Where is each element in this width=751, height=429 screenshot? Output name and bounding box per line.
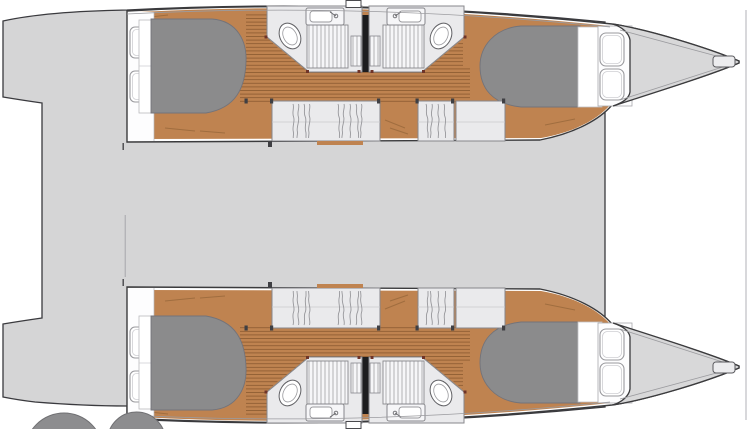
catamaran-layout-plan	[0, 0, 751, 429]
engine-prop-circle	[25, 413, 103, 429]
starboard-hull	[127, 1, 739, 148]
plan-svg	[0, 0, 751, 429]
port-hull	[127, 282, 739, 429]
